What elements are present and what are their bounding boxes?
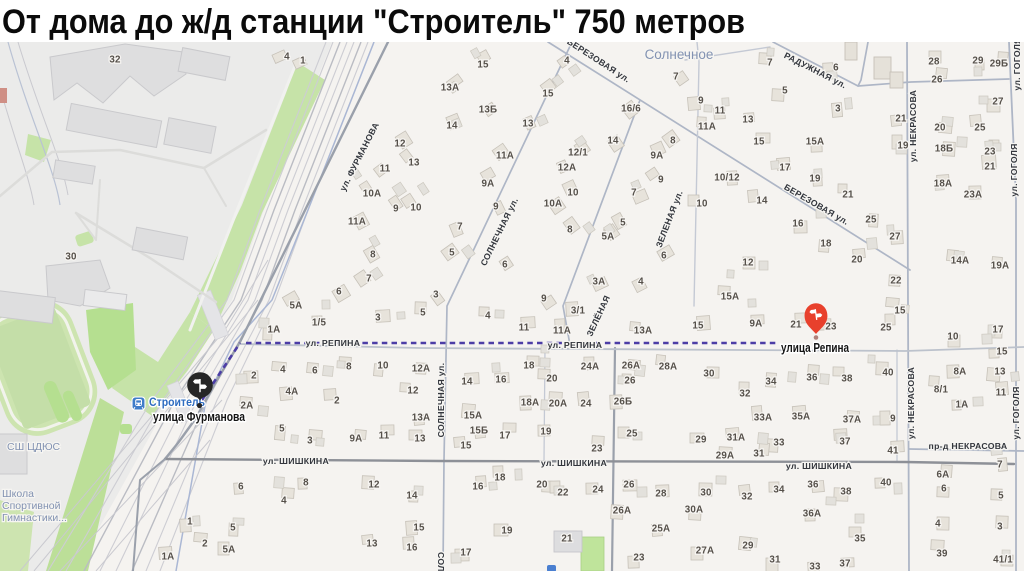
svg-text:12: 12 xyxy=(407,386,419,397)
svg-text:20: 20 xyxy=(546,374,558,385)
svg-text:8: 8 xyxy=(567,225,573,236)
svg-text:Школа: Школа xyxy=(2,488,34,500)
svg-text:13А: 13А xyxy=(441,83,460,94)
svg-text:5: 5 xyxy=(279,424,285,435)
svg-text:9: 9 xyxy=(890,414,896,425)
svg-text:33: 33 xyxy=(773,438,785,449)
svg-text:ул. РЕПИНА: ул. РЕПИНА xyxy=(548,340,603,350)
svg-text:33: 33 xyxy=(809,562,821,571)
svg-text:4: 4 xyxy=(638,277,644,288)
svg-text:ул. ШИШКИНА: ул. ШИШКИНА xyxy=(786,461,853,471)
svg-text:15Б: 15Б xyxy=(470,426,489,437)
svg-text:23: 23 xyxy=(825,322,837,333)
svg-text:39: 39 xyxy=(936,549,948,560)
svg-text:От дома до ж/д станции "Строит: От дома до ж/д станции "Строитель" 750 м… xyxy=(2,3,745,41)
svg-text:15А: 15А xyxy=(464,411,483,422)
svg-text:4: 4 xyxy=(284,52,290,63)
svg-text:9: 9 xyxy=(658,175,664,186)
svg-text:37А: 37А xyxy=(843,415,862,426)
svg-text:5: 5 xyxy=(420,308,426,319)
svg-text:7: 7 xyxy=(631,188,637,199)
svg-text:20: 20 xyxy=(934,123,946,134)
svg-text:13: 13 xyxy=(366,539,378,550)
svg-text:5: 5 xyxy=(998,491,1004,502)
svg-text:13А: 13А xyxy=(634,326,653,337)
svg-text:6: 6 xyxy=(502,260,508,271)
svg-text:30: 30 xyxy=(703,369,715,380)
svg-text:21: 21 xyxy=(895,114,907,125)
svg-text:34: 34 xyxy=(765,377,777,388)
svg-text:29: 29 xyxy=(972,56,984,67)
svg-text:ул. ГОГОЛЯ: ул. ГОГОЛЯ xyxy=(1009,143,1019,196)
svg-text:25: 25 xyxy=(865,215,877,226)
svg-text:6: 6 xyxy=(661,251,667,262)
svg-text:26Б: 26Б xyxy=(614,397,633,408)
svg-text:СОЛНЕЧНАЯ: СОЛНЕЧНАЯ xyxy=(436,552,446,571)
svg-text:26: 26 xyxy=(931,75,943,86)
svg-text:14: 14 xyxy=(446,121,458,132)
svg-text:14: 14 xyxy=(756,196,768,207)
svg-text:Спортивной: Спортивной xyxy=(2,500,61,512)
svg-text:13: 13 xyxy=(742,115,754,126)
svg-text:29А: 29А xyxy=(716,451,735,462)
svg-text:12: 12 xyxy=(742,258,754,269)
svg-text:ул. ШИШКИНА: ул. ШИШКИНА xyxy=(541,458,608,468)
svg-text:27А: 27А xyxy=(696,546,715,557)
svg-text:34: 34 xyxy=(773,485,785,496)
svg-text:9: 9 xyxy=(393,204,399,215)
svg-text:18Б: 18Б xyxy=(935,144,954,155)
svg-text:11А: 11А xyxy=(553,326,571,337)
svg-text:9А: 9А xyxy=(651,151,664,162)
svg-text:28: 28 xyxy=(928,57,940,68)
svg-text:37: 37 xyxy=(839,437,851,448)
svg-text:5: 5 xyxy=(620,218,626,229)
svg-text:25А: 25А xyxy=(652,524,671,535)
svg-text:8: 8 xyxy=(670,136,676,147)
svg-text:18: 18 xyxy=(820,239,832,250)
svg-text:пр-д НЕКРАСОВА: пр-д НЕКРАСОВА xyxy=(929,441,1008,451)
svg-text:16: 16 xyxy=(406,543,418,554)
svg-text:19: 19 xyxy=(540,427,552,438)
svg-text:6: 6 xyxy=(238,482,244,493)
svg-text:12: 12 xyxy=(394,139,406,150)
svg-text:19: 19 xyxy=(501,526,513,537)
svg-text:9: 9 xyxy=(698,96,704,107)
svg-text:11: 11 xyxy=(996,388,1007,399)
svg-text:3: 3 xyxy=(433,290,439,301)
svg-text:26: 26 xyxy=(624,376,636,387)
svg-text:10: 10 xyxy=(567,188,579,199)
svg-text:21: 21 xyxy=(561,534,573,545)
svg-text:10: 10 xyxy=(377,361,389,372)
svg-text:16/6: 16/6 xyxy=(621,104,641,115)
svg-text:11: 11 xyxy=(379,431,390,442)
svg-text:18А: 18А xyxy=(934,179,953,190)
svg-text:14: 14 xyxy=(607,136,619,147)
svg-text:СШ ЦДЮС: СШ ЦДЮС xyxy=(7,441,60,453)
svg-text:8А: 8А xyxy=(954,367,967,378)
svg-text:ул. НЕКРАСОВА: ул. НЕКРАСОВА xyxy=(908,89,918,162)
svg-text:35А: 35А xyxy=(792,412,811,423)
svg-text:8: 8 xyxy=(370,250,376,261)
svg-text:16: 16 xyxy=(472,482,484,493)
svg-text:14: 14 xyxy=(406,491,418,502)
svg-text:10: 10 xyxy=(947,332,959,343)
svg-text:32: 32 xyxy=(741,492,753,503)
svg-text:15А: 15А xyxy=(806,137,825,148)
svg-text:5А: 5А xyxy=(223,545,236,556)
svg-text:5А: 5А xyxy=(290,301,303,312)
svg-text:26А: 26А xyxy=(613,506,632,517)
svg-text:ул. ГОГОЛЯ: ул. ГОГОЛЯ xyxy=(1011,386,1021,439)
svg-text:18А: 18А xyxy=(521,398,540,409)
svg-text:1А: 1А xyxy=(162,552,175,563)
svg-text:38: 38 xyxy=(840,487,852,498)
svg-text:23: 23 xyxy=(984,147,996,158)
svg-text:13Б: 13Б xyxy=(479,105,498,116)
svg-text:15: 15 xyxy=(894,306,906,317)
svg-text:17: 17 xyxy=(992,325,1004,336)
svg-text:27: 27 xyxy=(889,232,901,243)
svg-text:41: 41 xyxy=(887,446,899,457)
svg-text:31: 31 xyxy=(769,555,781,566)
svg-text:9А: 9А xyxy=(350,434,363,445)
svg-text:3: 3 xyxy=(307,436,313,447)
svg-text:13: 13 xyxy=(414,434,426,445)
svg-text:7: 7 xyxy=(997,460,1003,471)
svg-text:15: 15 xyxy=(542,89,554,100)
svg-text:6: 6 xyxy=(941,484,947,495)
svg-text:1: 1 xyxy=(187,517,193,528)
svg-text:35: 35 xyxy=(854,534,866,545)
svg-text:33А: 33А xyxy=(754,413,773,424)
svg-text:5А: 5А xyxy=(602,232,615,243)
svg-text:29Б: 29Б xyxy=(990,59,1009,70)
svg-text:6А: 6А xyxy=(937,470,950,481)
svg-text:15: 15 xyxy=(477,60,489,71)
svg-text:3: 3 xyxy=(997,522,1003,533)
svg-text:9А: 9А xyxy=(750,319,763,330)
svg-text:5: 5 xyxy=(230,523,236,534)
svg-text:Солнечное: Солнечное xyxy=(645,47,714,62)
svg-text:17: 17 xyxy=(460,548,472,559)
svg-text:36: 36 xyxy=(806,373,818,384)
svg-text:31А: 31А xyxy=(727,433,746,444)
svg-text:12: 12 xyxy=(368,480,380,491)
svg-text:15: 15 xyxy=(753,137,765,148)
svg-text:38: 38 xyxy=(841,374,853,385)
svg-text:26: 26 xyxy=(623,480,635,491)
svg-text:15: 15 xyxy=(996,347,1008,358)
svg-text:29: 29 xyxy=(742,541,754,552)
svg-text:16: 16 xyxy=(495,375,507,386)
svg-text:21: 21 xyxy=(984,162,996,173)
svg-text:4: 4 xyxy=(935,519,941,530)
svg-text:24: 24 xyxy=(592,485,604,496)
svg-text:15: 15 xyxy=(460,441,472,452)
svg-text:10: 10 xyxy=(696,199,708,210)
svg-text:25: 25 xyxy=(974,123,986,134)
svg-text:40: 40 xyxy=(880,478,892,489)
svg-text:17: 17 xyxy=(779,163,791,174)
svg-text:11: 11 xyxy=(380,164,391,175)
svg-text:17: 17 xyxy=(499,431,511,442)
svg-text:19А: 19А xyxy=(991,261,1010,272)
svg-text:25: 25 xyxy=(626,429,638,440)
svg-text:2: 2 xyxy=(251,371,257,382)
svg-text:11А: 11А xyxy=(698,122,716,133)
svg-text:11А: 11А xyxy=(348,217,366,228)
svg-text:7: 7 xyxy=(457,222,463,233)
svg-text:СОЛНЕЧНАЯ ул.: СОЛНЕЧНАЯ ул. xyxy=(436,363,446,438)
svg-text:9: 9 xyxy=(493,202,499,213)
svg-text:20А: 20А xyxy=(549,399,568,410)
svg-text:13: 13 xyxy=(522,119,534,130)
svg-text:41/1: 41/1 xyxy=(993,555,1013,566)
svg-text:27: 27 xyxy=(992,97,1004,108)
svg-text:6: 6 xyxy=(833,63,839,74)
svg-text:32: 32 xyxy=(109,55,121,66)
svg-text:1А: 1А xyxy=(956,400,969,411)
svg-text:15А: 15А xyxy=(721,292,740,303)
svg-text:3: 3 xyxy=(835,104,841,115)
svg-text:ул. НЕКРАСОВА: ул. НЕКРАСОВА xyxy=(906,366,916,439)
svg-text:32: 32 xyxy=(739,389,751,400)
svg-text:11А: 11А xyxy=(496,151,514,162)
svg-text:15: 15 xyxy=(692,321,704,332)
svg-text:Гимнастики...: Гимнастики... xyxy=(2,512,67,524)
svg-text:5: 5 xyxy=(782,86,788,97)
svg-text:4А: 4А xyxy=(286,387,299,398)
svg-text:31: 31 xyxy=(753,449,765,460)
svg-text:23: 23 xyxy=(591,444,603,455)
svg-text:25: 25 xyxy=(880,323,892,334)
svg-text:10А: 10А xyxy=(544,199,563,210)
svg-text:30: 30 xyxy=(700,488,712,499)
svg-text:7: 7 xyxy=(366,274,372,285)
svg-text:24А: 24А xyxy=(581,362,600,373)
svg-text:14: 14 xyxy=(461,377,473,388)
svg-text:22: 22 xyxy=(557,488,569,499)
svg-text:18: 18 xyxy=(523,361,535,372)
svg-text:9: 9 xyxy=(541,294,547,305)
svg-text:ул. РЕПИНА: ул. РЕПИНА xyxy=(306,338,361,348)
svg-text:10А: 10А xyxy=(363,189,382,200)
svg-text:30: 30 xyxy=(65,252,77,263)
svg-text:10/12: 10/12 xyxy=(714,173,740,184)
svg-text:22: 22 xyxy=(890,276,902,287)
svg-text:14А: 14А xyxy=(951,256,970,267)
svg-text:3/1: 3/1 xyxy=(571,306,586,317)
svg-text:ул. ГОГОЛЯ: ул. ГОГОЛЯ xyxy=(1012,37,1022,90)
svg-text:4: 4 xyxy=(485,311,491,322)
svg-text:29: 29 xyxy=(695,435,707,446)
svg-text:11: 11 xyxy=(519,323,530,334)
svg-text:8/1: 8/1 xyxy=(934,385,949,396)
svg-text:13А: 13А xyxy=(412,413,431,424)
svg-text:20: 20 xyxy=(851,255,863,266)
svg-text:21: 21 xyxy=(842,190,854,201)
svg-text:ул. ШИШКИНА: ул. ШИШКИНА xyxy=(263,456,330,466)
svg-text:36А: 36А xyxy=(803,509,822,520)
svg-text:28: 28 xyxy=(655,489,667,500)
svg-text:7: 7 xyxy=(673,72,679,83)
svg-text:2: 2 xyxy=(202,539,208,550)
svg-text:30А: 30А xyxy=(685,505,704,516)
svg-text:Строитель: Строитель xyxy=(149,397,205,409)
svg-text:2: 2 xyxy=(334,396,340,407)
svg-text:36: 36 xyxy=(807,480,819,491)
svg-text:4: 4 xyxy=(281,496,287,507)
svg-text:23А: 23А xyxy=(964,190,983,201)
svg-text:23: 23 xyxy=(633,553,645,564)
svg-text:3А: 3А xyxy=(593,277,606,288)
svg-text:40: 40 xyxy=(882,368,894,379)
svg-text:9А: 9А xyxy=(482,179,495,190)
svg-text:7: 7 xyxy=(767,58,773,69)
svg-text:6: 6 xyxy=(312,366,318,377)
svg-text:26А: 26А xyxy=(622,361,641,372)
svg-text:1/5: 1/5 xyxy=(312,318,327,329)
svg-text:4: 4 xyxy=(564,56,570,67)
svg-text:15: 15 xyxy=(413,523,425,534)
svg-text:19: 19 xyxy=(809,174,821,185)
svg-text:улица Репина: улица Репина xyxy=(781,340,850,355)
svg-text:4: 4 xyxy=(280,365,286,376)
svg-text:28А: 28А xyxy=(659,362,678,373)
svg-text:13: 13 xyxy=(994,367,1006,378)
svg-text:37: 37 xyxy=(839,559,851,570)
svg-text:1: 1 xyxy=(300,56,306,67)
svg-text:10: 10 xyxy=(410,203,422,214)
svg-text:20: 20 xyxy=(536,480,548,491)
svg-text:8: 8 xyxy=(346,362,352,373)
svg-text:6: 6 xyxy=(336,287,342,298)
svg-text:24: 24 xyxy=(580,399,592,410)
svg-text:12/1: 12/1 xyxy=(568,148,588,159)
svg-text:5: 5 xyxy=(449,248,455,259)
svg-text:12А: 12А xyxy=(558,163,577,174)
svg-text:12А: 12А xyxy=(412,364,431,375)
svg-text:13: 13 xyxy=(408,158,420,169)
svg-text:16: 16 xyxy=(792,219,804,230)
svg-text:18: 18 xyxy=(494,473,506,484)
svg-text:21: 21 xyxy=(790,320,802,331)
svg-text:3: 3 xyxy=(375,313,381,324)
svg-text:улица Фурманова: улица Фурманова xyxy=(153,409,246,424)
svg-text:1А: 1А xyxy=(268,325,281,336)
svg-text:11: 11 xyxy=(715,106,726,117)
svg-text:8: 8 xyxy=(303,478,309,489)
